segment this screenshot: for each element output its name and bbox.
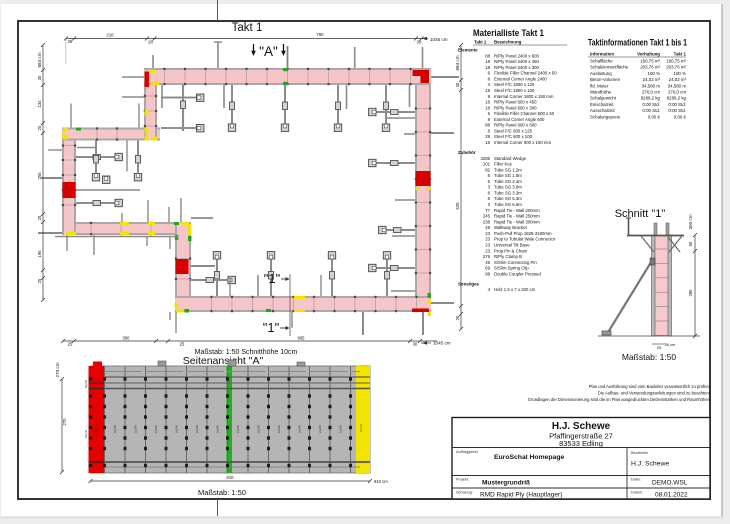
svg-text:Information: Information bbox=[590, 52, 614, 57]
svg-text:0:00 Std.: 0:00 Std. bbox=[642, 102, 660, 107]
svg-text:760: 760 bbox=[317, 32, 325, 37]
svg-text:77: 77 bbox=[485, 208, 490, 213]
svg-text:Die Aufbau- und Verwendungsanl: Die Aufbau- und Verwendungsanleitungen s… bbox=[598, 391, 710, 396]
svg-text:External Corner Angle 2400: External Corner Angle 2400 bbox=[494, 76, 547, 81]
svg-text:629: 629 bbox=[455, 202, 460, 210]
svg-text:R/Ply Clamp B: R/Ply Clamp B bbox=[494, 254, 522, 259]
svg-text:0,00 €: 0,00 € bbox=[674, 114, 687, 119]
svg-text:1045 cm: 1045 cm bbox=[430, 37, 448, 42]
svg-text:34,580 m: 34,580 m bbox=[668, 83, 687, 88]
svg-text:100 %: 100 % bbox=[648, 71, 661, 76]
svg-text:16: 16 bbox=[485, 140, 490, 145]
svg-text:Schalelementfläche: Schalelementfläche bbox=[590, 65, 629, 70]
svg-text:Tube SG 2.4m: Tube SG 2.4m bbox=[494, 179, 522, 184]
svg-text:S/Slim Spring Clip: S/Slim Spring Clip bbox=[494, 266, 529, 271]
svg-text:AE240: AE240 bbox=[359, 423, 363, 432]
svg-text:Filler Key: Filler Key bbox=[494, 162, 513, 167]
svg-text:R/Ply Panel 600 x 300: R/Ply Panel 600 x 300 bbox=[494, 105, 537, 110]
svg-text:18: 18 bbox=[485, 88, 490, 93]
svg-text:101: 101 bbox=[483, 162, 491, 167]
svg-text:88: 88 bbox=[485, 123, 490, 128]
svg-text:S/Slim Connecting Pin: S/Slim Connecting Pin bbox=[494, 260, 537, 265]
svg-text:3286: 3286 bbox=[480, 156, 490, 161]
svg-text:160,75 m²: 160,75 m² bbox=[666, 59, 686, 64]
svg-text:25: 25 bbox=[68, 39, 73, 44]
svg-text:23: 23 bbox=[485, 243, 490, 248]
svg-text:EuroSchal Homepage: EuroSchal Homepage bbox=[494, 454, 564, 461]
svg-text:Taktinformationen Takt 1 bis: Taktinformationen Takt 1 bis 1 bbox=[588, 37, 688, 48]
svg-text:Steel F/C 1800 x 100: Steel F/C 1800 x 100 bbox=[494, 88, 535, 93]
svg-text:Materialliste Takt 1: Materialliste Takt 1 bbox=[473, 28, 545, 39]
svg-text:195: 195 bbox=[37, 250, 42, 258]
svg-text:2x240: 2x240 bbox=[154, 425, 158, 434]
svg-text:Wandhöhe: Wandhöhe bbox=[590, 90, 612, 95]
svg-text:18: 18 bbox=[485, 105, 490, 110]
svg-text:2x240: 2x240 bbox=[256, 425, 260, 434]
svg-text:Tube SG 1.2m: Tube SG 1.2m bbox=[494, 167, 522, 172]
svg-text:Bezeichnung: Bezeichnung bbox=[494, 40, 522, 45]
svg-text:Steel F/C 600 x 125: Steel F/C 600 x 125 bbox=[494, 128, 533, 133]
svg-text:"1": "1" bbox=[263, 320, 280, 335]
svg-text:Projekt:: Projekt: bbox=[456, 478, 469, 482]
svg-text:Prop Pin & Chain: Prop Pin & Chain bbox=[494, 248, 528, 253]
svg-text:25: 25 bbox=[455, 315, 460, 320]
svg-text:1045 cm: 1045 cm bbox=[433, 341, 451, 346]
svg-text:8289,2 kg: 8289,2 kg bbox=[641, 96, 661, 101]
svg-text:8289,2 kg: 8289,2 kg bbox=[667, 96, 687, 101]
svg-text:300: 300 bbox=[123, 336, 131, 341]
svg-text:245: 245 bbox=[483, 214, 491, 219]
svg-text:23: 23 bbox=[485, 237, 490, 242]
svg-text:Elemente: Elemente bbox=[458, 48, 478, 53]
svg-text:98: 98 bbox=[485, 271, 490, 276]
svg-text:34,580 m: 34,580 m bbox=[642, 83, 661, 88]
svg-text:24,02 m³: 24,02 m³ bbox=[643, 77, 661, 82]
svg-text:25: 25 bbox=[37, 215, 42, 220]
svg-text:Schalung:: Schalung: bbox=[456, 491, 473, 495]
svg-text:R/Ply Panel 2400 x 300: R/Ply Panel 2400 x 300 bbox=[494, 65, 540, 70]
svg-text:276: 276 bbox=[483, 254, 491, 259]
svg-text:"1": "1" bbox=[264, 271, 281, 286]
svg-text:25: 25 bbox=[37, 278, 42, 283]
svg-text:2x240: 2x240 bbox=[195, 425, 199, 434]
svg-text:88: 88 bbox=[485, 53, 490, 58]
svg-text:Push-Pull Prop 1828-3180mm: Push-Pull Prop 1828-3180mm bbox=[494, 231, 552, 236]
svg-text:Schalfläche: Schalfläche bbox=[590, 59, 613, 64]
svg-text:Vorhaltung: Vorhaltung bbox=[637, 52, 660, 57]
svg-text:H.J. Schewe: H.J. Schewe bbox=[552, 421, 611, 432]
svg-text:Schalgewicht: Schalgewicht bbox=[590, 96, 617, 101]
svg-text:Auslastung: Auslastung bbox=[590, 71, 612, 76]
svg-text:AE240: AE240 bbox=[84, 379, 88, 388]
svg-text:Flexible Filler Channel 2400 x: Flexible Filler Channel 2400 x 50 bbox=[494, 71, 557, 76]
svg-text:203,76 m²: 203,76 m² bbox=[666, 65, 686, 70]
svg-text:Auftraggeber: Auftraggeber bbox=[456, 450, 479, 454]
svg-text:69: 69 bbox=[485, 266, 490, 271]
svg-text:Einschalzeit: Einschalzeit bbox=[590, 102, 614, 107]
svg-text:20: 20 bbox=[37, 125, 42, 130]
svg-text:810: 810 bbox=[227, 475, 235, 480]
svg-text:160,75 m²: 160,75 m² bbox=[640, 59, 660, 64]
svg-text:Takt 1: Takt 1 bbox=[232, 22, 263, 34]
svg-text:Tube SG 3.3m: Tube SG 3.3m bbox=[494, 191, 522, 196]
svg-text:"A": "A" bbox=[259, 44, 278, 59]
svg-text:Tube SG 6.3m: Tube SG 6.3m bbox=[494, 196, 522, 201]
svg-text:2x240: 2x240 bbox=[215, 425, 219, 434]
svg-text:R/Ply Panel 600 x 450: R/Ply Panel 600 x 450 bbox=[494, 100, 537, 105]
svg-text:25: 25 bbox=[657, 345, 662, 350]
svg-text:Flexible Filler Channel 600 x: Flexible Filler Channel 600 x 50 bbox=[494, 111, 555, 116]
svg-text:238: 238 bbox=[483, 219, 491, 224]
svg-text:18: 18 bbox=[485, 59, 490, 64]
svg-text:2x240: 2x240 bbox=[113, 425, 117, 434]
svg-text:DEMO.WSL: DEMO.WSL bbox=[652, 480, 688, 487]
svg-text:30: 30 bbox=[37, 75, 42, 80]
svg-text:Prop to Tubular Wale Connector: Prop to Tubular Wale Connector bbox=[494, 237, 556, 242]
svg-text:0:00 Std.: 0:00 Std. bbox=[642, 108, 660, 113]
svg-text:Schnitt "1": Schnitt "1" bbox=[615, 208, 666, 220]
svg-text:665: 665 bbox=[298, 336, 306, 341]
svg-text:2x240: 2x240 bbox=[338, 425, 342, 434]
svg-text:RMD Rapid Ply (Hauptlager): RMD Rapid Ply (Hauptlager) bbox=[480, 492, 562, 499]
svg-text:270,0 cm: 270,0 cm bbox=[642, 90, 660, 95]
svg-text:270: 270 bbox=[62, 418, 67, 426]
svg-text:2x240: 2x240 bbox=[297, 425, 301, 434]
svg-text:25: 25 bbox=[180, 342, 185, 347]
svg-text:Rapid Tie - Wall 250mm: Rapid Tie - Wall 250mm bbox=[494, 214, 540, 219]
svg-text:0,00 €: 0,00 € bbox=[648, 114, 661, 119]
svg-text:0:00 Std.: 0:00 Std. bbox=[668, 108, 686, 113]
svg-text:Walkway Bracket: Walkway Bracket bbox=[494, 225, 528, 230]
svg-text:Double Coupler Pressed: Double Coupler Pressed bbox=[494, 271, 541, 276]
svg-text:External Corner Angle 600: External Corner Angle 600 bbox=[494, 117, 545, 122]
svg-text:83533 Edling: 83533 Edling bbox=[559, 439, 603, 448]
svg-text:82: 82 bbox=[485, 167, 490, 172]
svg-text:100 %: 100 % bbox=[674, 71, 687, 76]
svg-text:18: 18 bbox=[485, 100, 490, 105]
svg-text:28: 28 bbox=[148, 40, 153, 45]
svg-text:R/Ply Panel 2400 x 600: R/Ply Panel 2400 x 600 bbox=[494, 53, 540, 58]
svg-text:R/Ply Panel 600 x 600: R/Ply Panel 600 x 600 bbox=[494, 123, 537, 128]
svg-text:30: 30 bbox=[417, 40, 422, 45]
svg-text:Seitenansicht "A": Seitenansicht "A" bbox=[183, 355, 264, 367]
svg-text:lfd. Meter: lfd. Meter bbox=[590, 83, 609, 88]
svg-text:30: 30 bbox=[455, 82, 460, 87]
svg-text:Universal Tilt Base: Universal Tilt Base bbox=[494, 243, 530, 248]
svg-text:23: 23 bbox=[485, 231, 490, 236]
svg-text:Steel F/C 600 x 100: Steel F/C 600 x 100 bbox=[494, 134, 533, 139]
svg-text:255: 255 bbox=[37, 172, 42, 180]
svg-text:Mustergrundriß: Mustergrundriß bbox=[482, 480, 530, 487]
svg-text:25: 25 bbox=[68, 342, 73, 347]
svg-text:Datum:: Datum: bbox=[631, 491, 643, 495]
svg-text:210: 210 bbox=[107, 33, 115, 38]
svg-text:Ausschalzeit: Ausschalzeit bbox=[590, 108, 615, 113]
svg-text:2x240: 2x240 bbox=[318, 425, 322, 434]
svg-text:Maßstab: 1:50: Maßstab: 1:50 bbox=[198, 488, 246, 497]
svg-text:Beton-Volumen: Beton-Volumen bbox=[590, 77, 621, 82]
svg-text:Takt 1: Takt 1 bbox=[474, 40, 487, 45]
svg-text:Grundlagen der Dimensionierung: Grundlagen der Dimensionierung sind die … bbox=[528, 397, 711, 402]
svg-text:300 cm: 300 cm bbox=[688, 214, 693, 229]
svg-text:18: 18 bbox=[485, 65, 490, 70]
svg-text:H.J. Schewe: H.J. Schewe bbox=[631, 461, 669, 468]
svg-text:0:00 Std.: 0:00 Std. bbox=[668, 102, 686, 107]
svg-text:2x240: 2x240 bbox=[174, 425, 178, 434]
svg-text:Bearbeiter: Bearbeiter bbox=[631, 451, 649, 455]
svg-text:2x240: 2x240 bbox=[94, 424, 98, 433]
svg-text:Rapid Tie - Wall 200mm: Rapid Tie - Wall 200mm bbox=[494, 208, 540, 213]
svg-text:28: 28 bbox=[485, 134, 490, 139]
svg-text:2x240: 2x240 bbox=[277, 425, 281, 434]
svg-text:Schalungspreis: Schalungspreis bbox=[590, 114, 621, 119]
svg-text:30: 30 bbox=[413, 342, 418, 347]
svg-text:Tube SG 1.8m: Tube SG 1.8m bbox=[494, 173, 522, 178]
svg-text:60: 60 bbox=[688, 241, 693, 246]
svg-text:Sonstiges: Sonstiges bbox=[458, 281, 480, 286]
svg-text:134: 134 bbox=[37, 100, 42, 108]
svg-text:270 cm: 270 cm bbox=[55, 362, 60, 377]
svg-text:26 cm: 26 cm bbox=[665, 343, 675, 347]
svg-text:49: 49 bbox=[485, 225, 490, 230]
svg-text:46: 46 bbox=[485, 260, 490, 265]
svg-text:Internal Corner 1800 x 150 mm: Internal Corner 1800 x 150 mm bbox=[494, 94, 554, 99]
svg-text:Steel F/C 1800 x 125: Steel F/C 1800 x 125 bbox=[494, 82, 535, 87]
svg-text:684 cm: 684 cm bbox=[455, 55, 460, 70]
svg-text:280: 280 bbox=[688, 289, 693, 297]
svg-text:Maßstab: 1:50: Maßstab: 1:50 bbox=[622, 352, 677, 362]
svg-text:684 cm: 684 cm bbox=[37, 52, 42, 67]
svg-text:Tube SG 3.0m: Tube SG 3.0m bbox=[494, 185, 522, 190]
svg-text:23: 23 bbox=[485, 248, 490, 253]
svg-text:AE240: AE240 bbox=[84, 429, 88, 438]
svg-text:08.01.2022: 08.01.2022 bbox=[655, 492, 688, 499]
svg-text:2x240: 2x240 bbox=[133, 425, 137, 434]
svg-text:R/Ply Panel 2400 x 450: R/Ply Panel 2400 x 450 bbox=[494, 59, 540, 64]
svg-text:Plan und Ausführung sind vom B: Plan und Ausführung sind vom Bauleiter v… bbox=[589, 384, 710, 389]
svg-text:203,76 m²: 203,76 m² bbox=[640, 65, 660, 70]
svg-text:Takt 1: Takt 1 bbox=[674, 52, 687, 57]
svg-text:Holz 1,5 x 7 x 330 cm: Holz 1,5 x 7 x 330 cm bbox=[494, 287, 536, 292]
svg-text:Standard Wedge: Standard Wedge bbox=[494, 156, 527, 161]
svg-text:810 cm: 810 cm bbox=[374, 479, 388, 484]
svg-text:24,02 m³: 24,02 m³ bbox=[669, 77, 687, 82]
svg-text:Tube SG 6.6m: Tube SG 6.6m bbox=[494, 202, 522, 207]
svg-text:270,0 cm: 270,0 cm bbox=[668, 90, 686, 95]
svg-text:Datei:: Datei: bbox=[631, 478, 641, 482]
svg-text:Rapid Tie - Wall 300mm: Rapid Tie - Wall 300mm bbox=[494, 219, 540, 224]
svg-text:2x240: 2x240 bbox=[236, 425, 240, 434]
svg-text:Internal Corner 600 x 150 mm: Internal Corner 600 x 150 mm bbox=[494, 140, 552, 145]
svg-text:Zubehör: Zubehör bbox=[458, 150, 476, 155]
